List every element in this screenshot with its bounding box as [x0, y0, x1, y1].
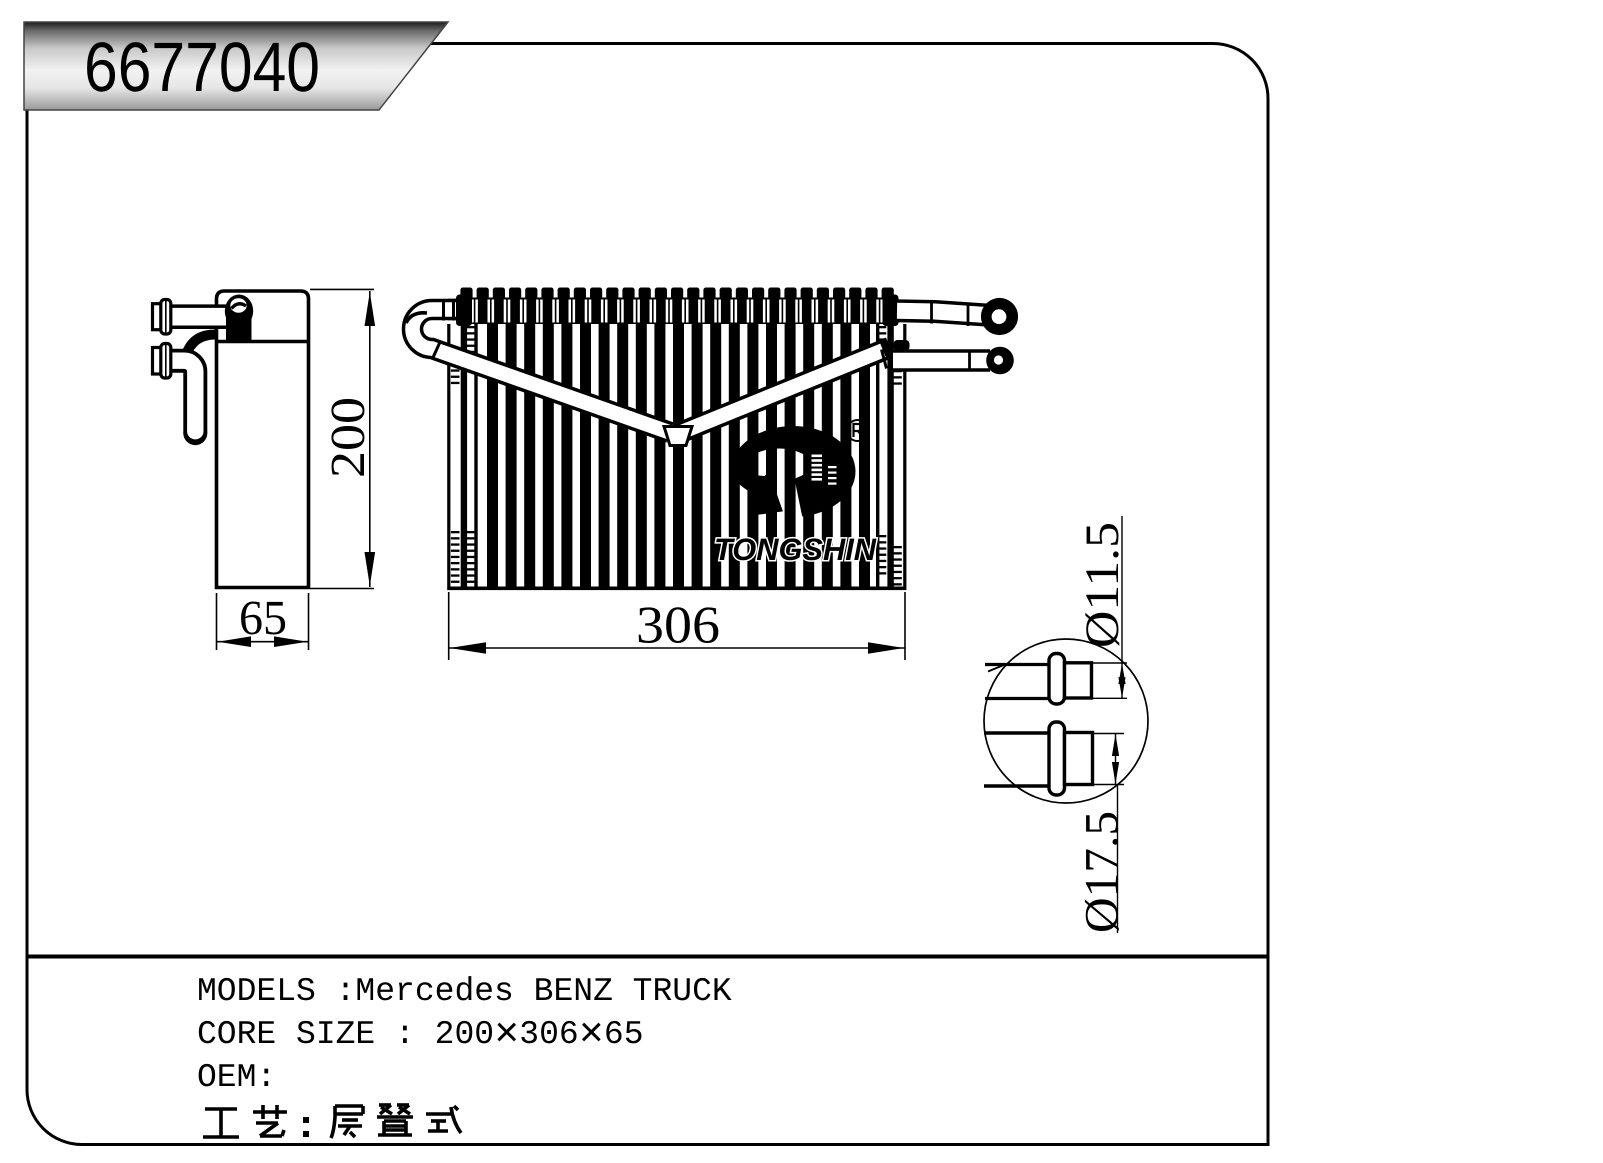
svg-text:6677040: 6677040	[84, 28, 320, 106]
svg-text:CORE SIZE : 200×306×65: CORE SIZE : 200×306×65	[197, 1011, 644, 1059]
svg-text:OEM:: OEM:	[197, 1059, 276, 1096]
svg-text:200: 200	[320, 397, 375, 478]
svg-text:Ø17.5: Ø17.5	[1076, 811, 1129, 933]
svg-text:Ø11.5: Ø11.5	[1076, 522, 1129, 648]
svg-text:306: 306	[636, 597, 720, 655]
svg-text:MODELS :Mercedes BENZ TRUCK: MODELS :Mercedes BENZ TRUCK	[197, 973, 732, 1010]
svg-text:65: 65	[239, 590, 287, 645]
svg-text:TONGSHIN: TONGSHIN	[714, 532, 877, 567]
